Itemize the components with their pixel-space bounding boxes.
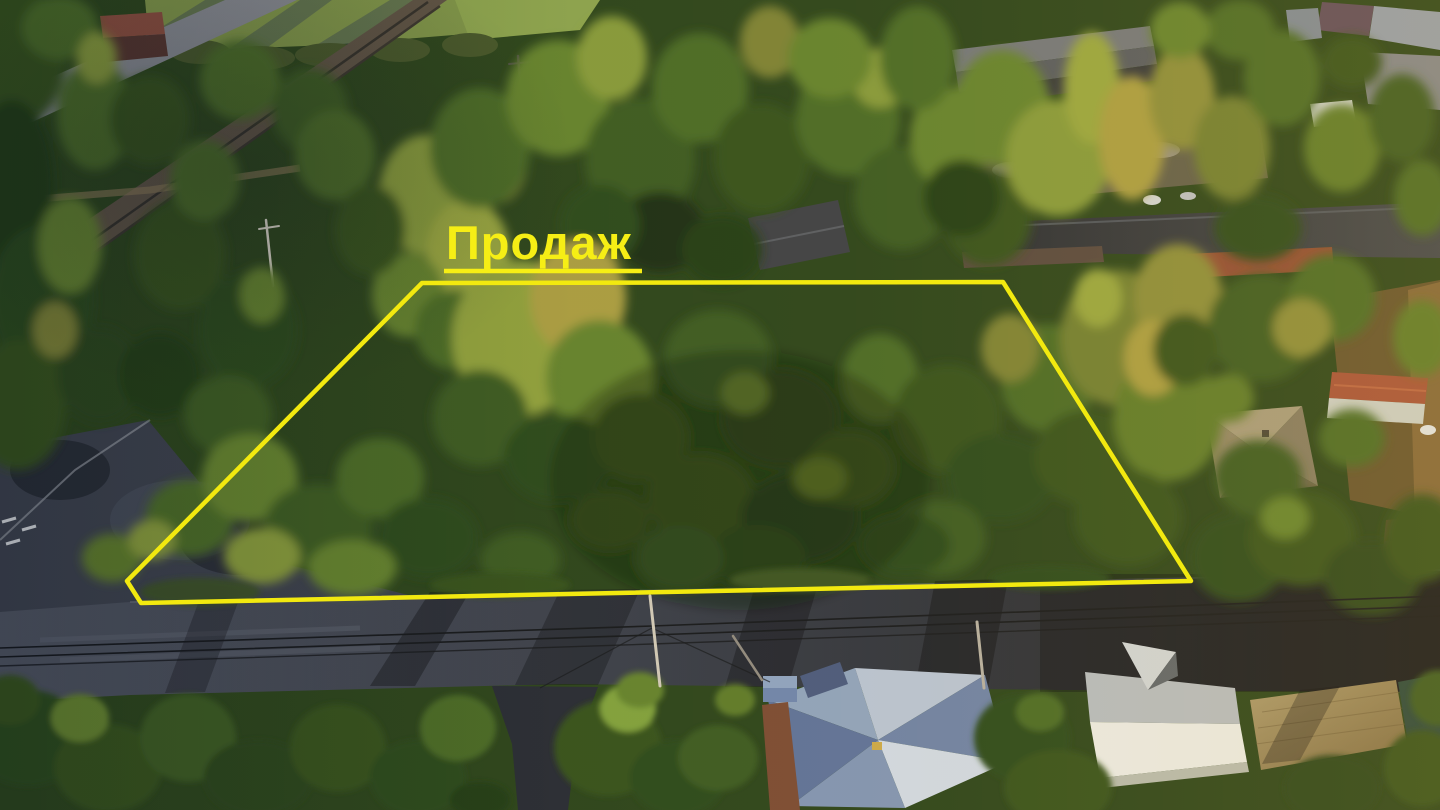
lighting-overlay: [0, 0, 1440, 810]
scene-svg: Продаж: [0, 0, 1440, 810]
sale-label: Продаж: [446, 216, 632, 269]
aerial-photo: Продаж: [0, 0, 1440, 810]
